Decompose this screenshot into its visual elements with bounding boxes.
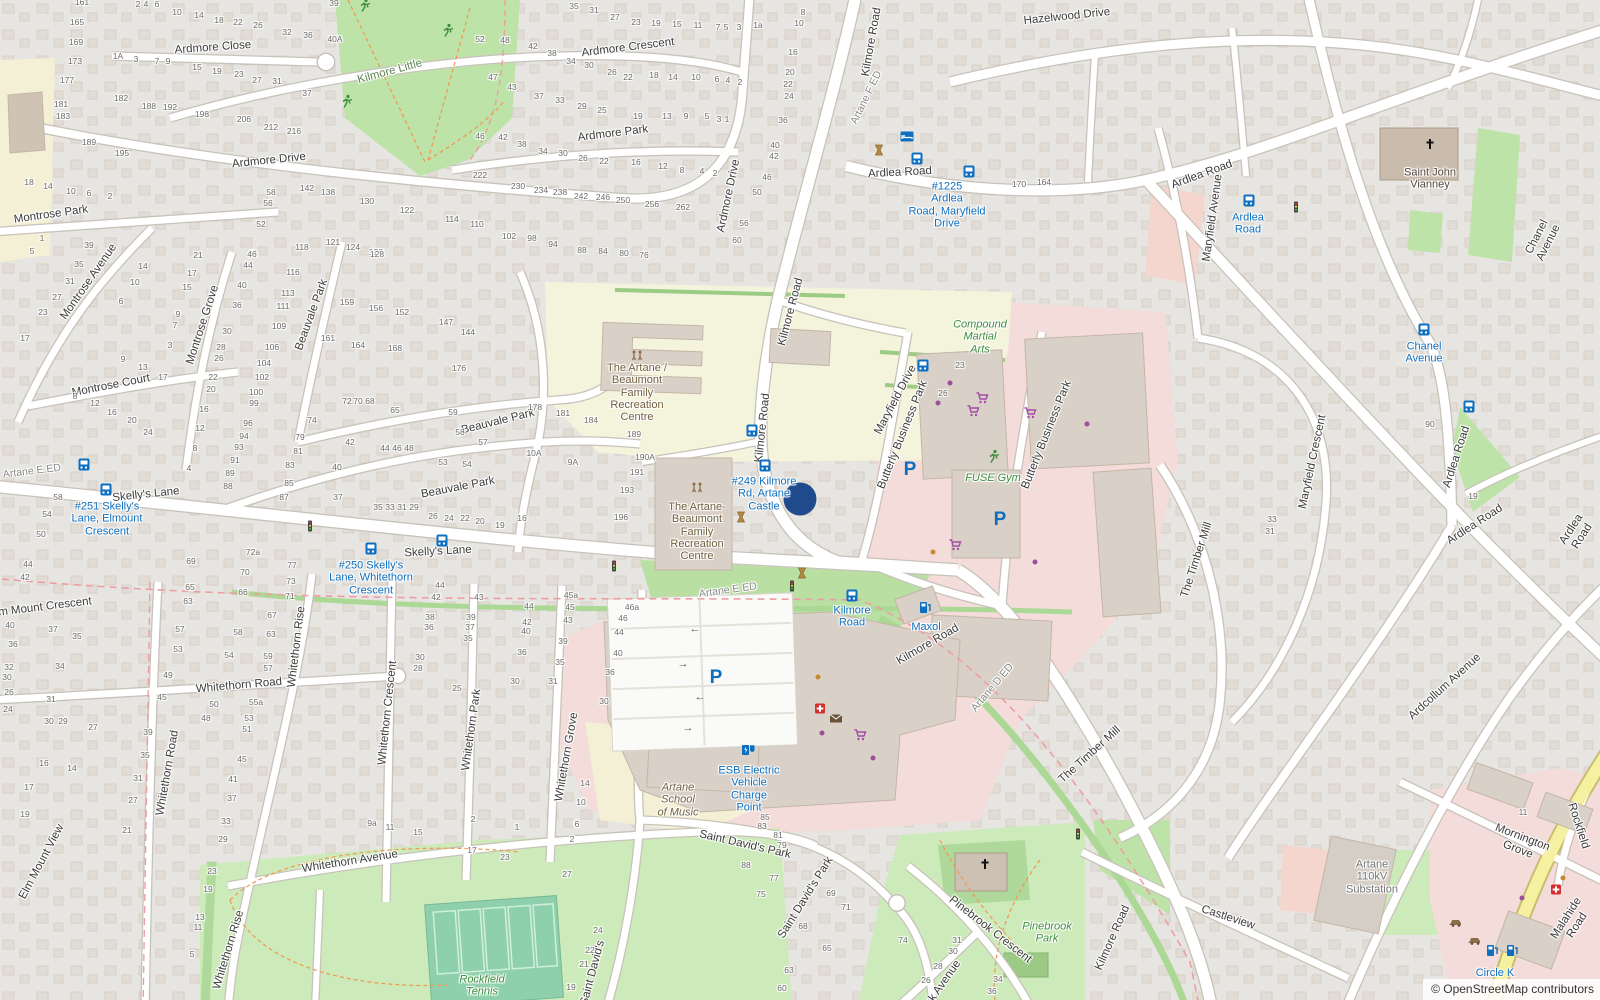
map-canvas[interactable]: Ardmore CloseArdmore CrescentHazelwood D… — [0, 0, 1600, 1000]
selected-location-marker[interactable] — [784, 483, 817, 516]
attribution[interactable]: © OpenStreetMap contributors — [1423, 979, 1600, 1000]
